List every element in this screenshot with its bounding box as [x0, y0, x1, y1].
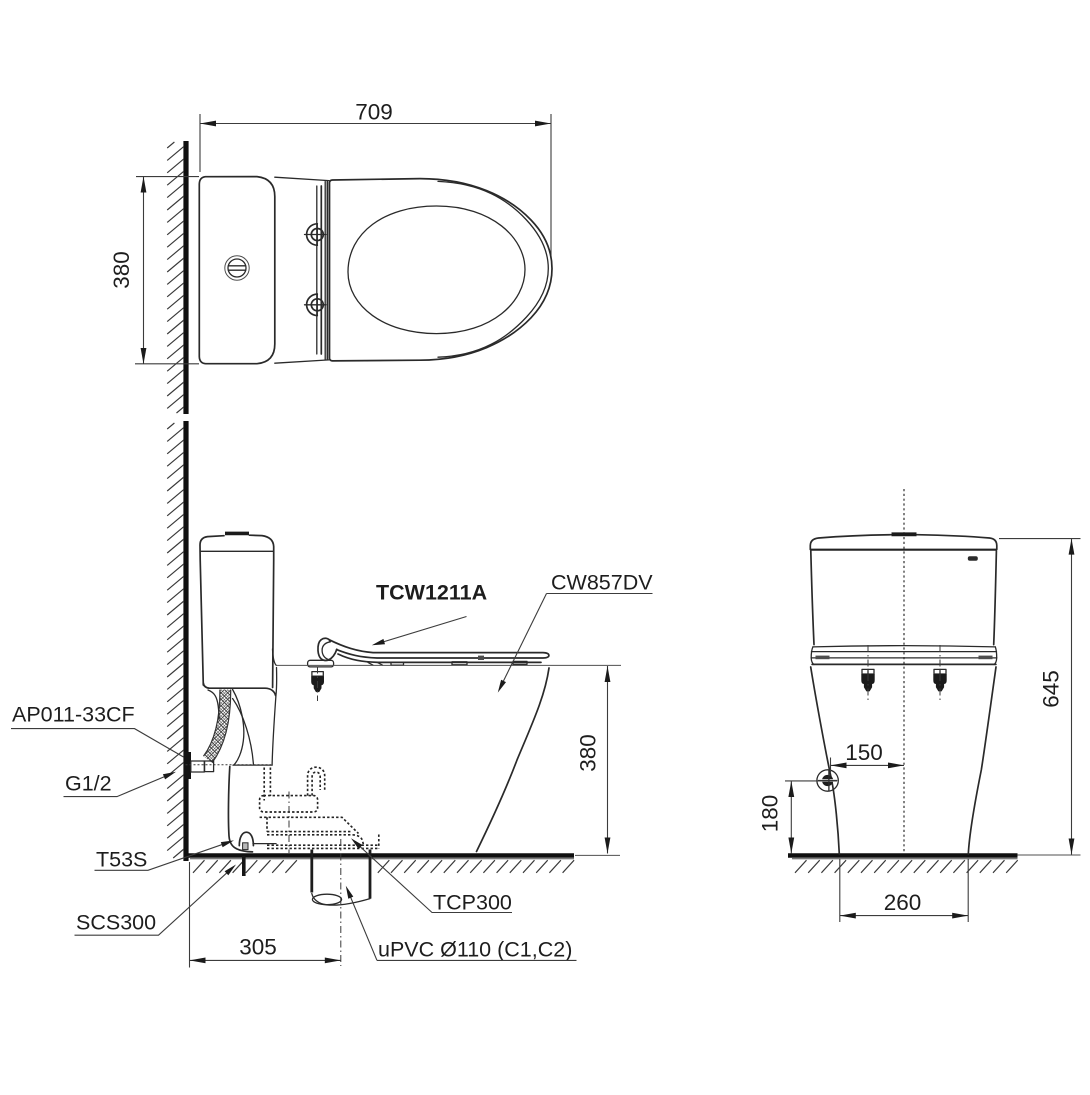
svg-text:T53S: T53S [96, 848, 147, 872]
svg-text:uPVC Ø110 (C1,C2): uPVC Ø110 (C1,C2) [378, 938, 572, 962]
svg-text:CW857DV: CW857DV [551, 571, 653, 595]
svg-text:150: 150 [845, 740, 883, 765]
svg-text:180: 180 [758, 795, 783, 833]
svg-text:TCP300: TCP300 [433, 891, 512, 915]
svg-text:SCS300: SCS300 [76, 911, 156, 935]
svg-text:TCW1211A: TCW1211A [376, 581, 487, 605]
svg-text:AP011-33CF: AP011-33CF [12, 703, 135, 727]
svg-text:380: 380 [109, 251, 134, 289]
svg-text:G1/2: G1/2 [65, 772, 112, 796]
svg-text:305: 305 [239, 935, 277, 960]
svg-text:260: 260 [884, 890, 922, 915]
svg-text:380: 380 [576, 734, 601, 772]
svg-text:709: 709 [355, 100, 393, 125]
svg-text:645: 645 [1039, 670, 1064, 708]
